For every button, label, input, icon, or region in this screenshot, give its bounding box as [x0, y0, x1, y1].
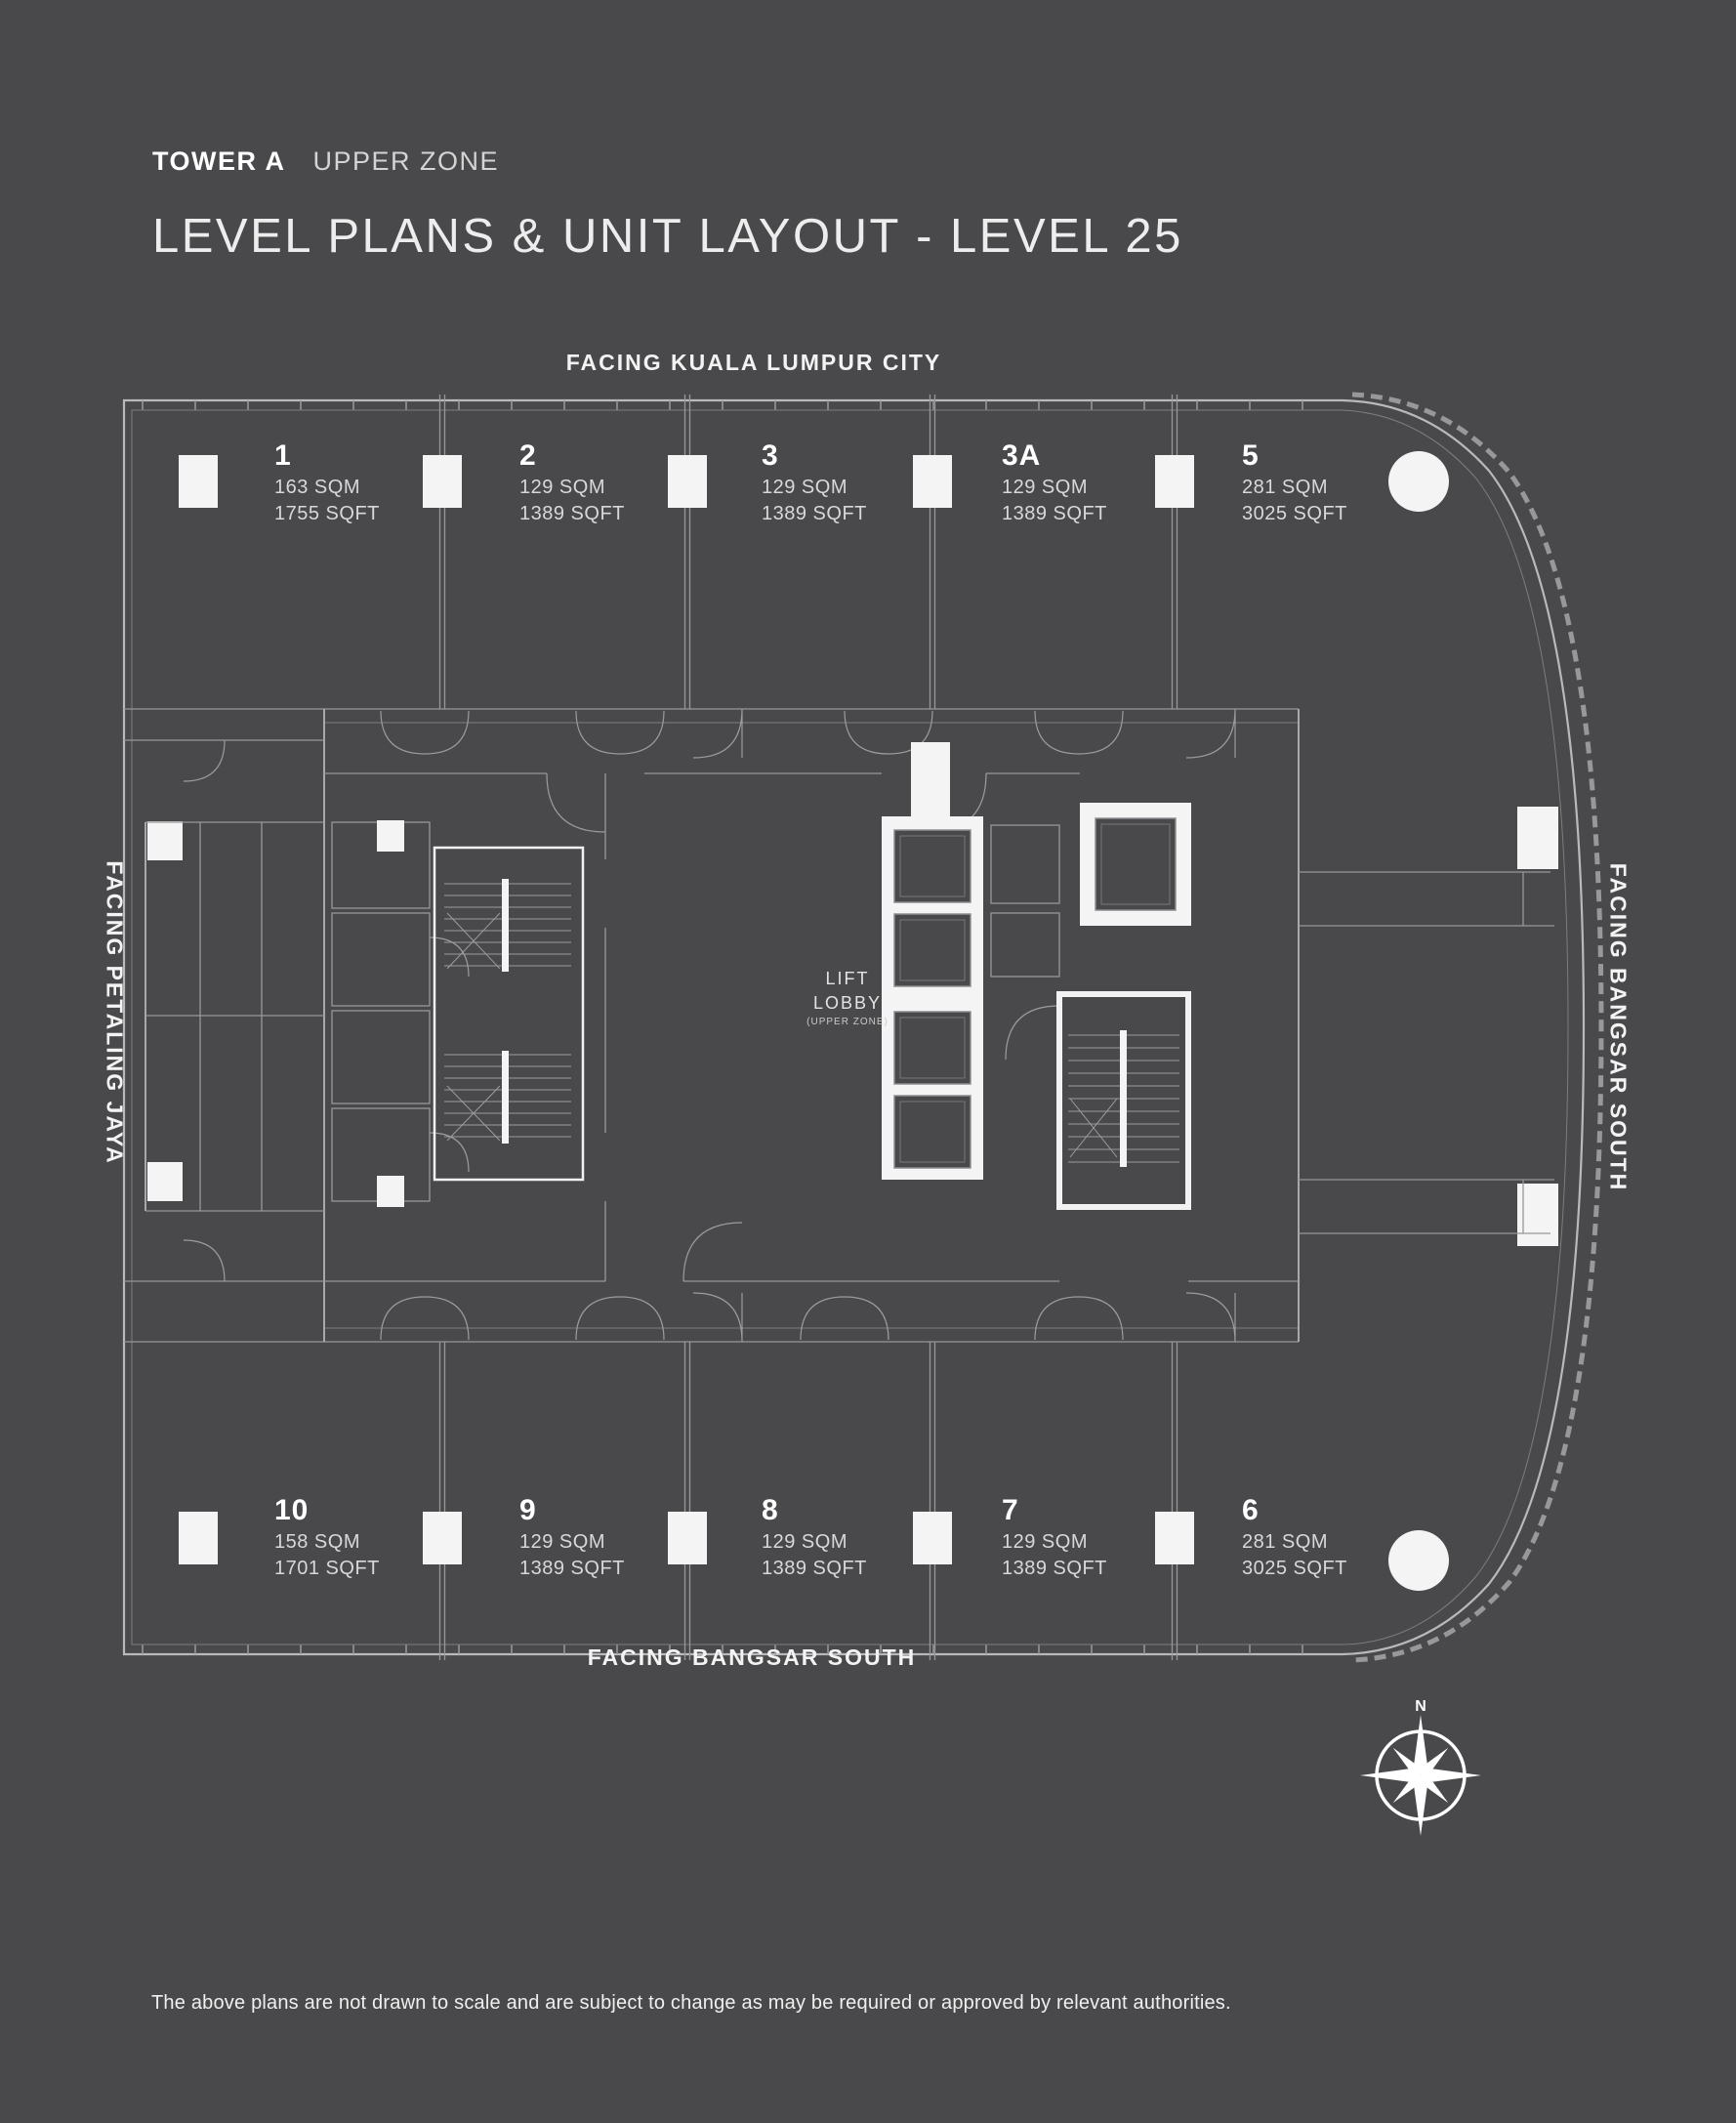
- column-bottom-9-8: [668, 1512, 707, 1564]
- unit-area-sqft: 3025 SQFT: [1242, 504, 1347, 523]
- compass-rose: N: [1360, 1698, 1481, 1836]
- column-top-3a-5: [1155, 455, 1194, 508]
- unit-label-2: 2 129 SQM 1389 SQFT: [519, 441, 625, 523]
- column-left-mid-lower: [147, 1162, 183, 1201]
- unit-area-sqft: 1389 SQFT: [1002, 1559, 1107, 1578]
- unit-label-8: 8 129 SQM 1389 SQFT: [762, 1496, 867, 1578]
- unit-label-9: 9 129 SQM 1389 SQFT: [519, 1496, 625, 1578]
- unit-area-sqft: 1389 SQFT: [519, 1559, 625, 1578]
- unit-area-sqft: 1389 SQFT: [1002, 504, 1107, 523]
- compass-cardinal-points: [1360, 1715, 1481, 1836]
- zone-label: UPPER ZONE: [313, 146, 500, 177]
- unit-area-sqm: 129 SQM: [519, 478, 625, 497]
- single-door: [693, 1293, 742, 1342]
- unit-area-sqft: 1389 SQFT: [762, 504, 867, 523]
- column-top-3-3a: [913, 455, 952, 508]
- page-title: LEVEL PLANS & UNIT LAYOUT - LEVEL 25: [152, 209, 1183, 264]
- unit-number: 3A: [1002, 441, 1107, 471]
- unit-area-sqft: 3025 SQFT: [1242, 1559, 1347, 1578]
- unit-number: 7: [1002, 1496, 1107, 1525]
- unit-number: 8: [762, 1496, 867, 1525]
- column-bottom-7-6: [1155, 1512, 1194, 1564]
- column-top-left: [179, 455, 218, 508]
- unit-area-sqm: 158 SQM: [274, 1532, 380, 1552]
- staircase-right: [1059, 994, 1188, 1207]
- lift-lobby-line1: LIFT: [806, 967, 889, 991]
- unit-label-7: 7 129 SQM 1389 SQFT: [1002, 1496, 1107, 1578]
- double-door: [801, 1297, 889, 1340]
- round-column-bottom-right: [1388, 1530, 1449, 1591]
- column-bottom-10-9: [423, 1512, 462, 1564]
- column-left-mid-upper: [147, 821, 183, 860]
- tower-label: TOWER A: [152, 146, 286, 177]
- unit-area-sqm: 129 SQM: [762, 1532, 867, 1552]
- page-header: TOWER A UPPER ZONE: [152, 146, 499, 177]
- unit-area-sqm: 129 SQM: [762, 478, 867, 497]
- unit-area-sqm: 163 SQM: [274, 478, 380, 497]
- unit-number: 6: [1242, 1496, 1347, 1525]
- unit-area-sqft: 1389 SQFT: [762, 1559, 867, 1578]
- unit-area-sqm: 129 SQM: [519, 1532, 625, 1552]
- compass-north-label: N: [1415, 1698, 1426, 1715]
- single-door: [1186, 709, 1235, 758]
- unit-label-3a: 3A 129 SQM 1389 SQFT: [1002, 441, 1107, 523]
- column-right-mid-upper: [1517, 807, 1558, 869]
- unit-area-sqm: 281 SQM: [1242, 478, 1347, 497]
- double-door: [1035, 711, 1123, 754]
- lift-lobby-label: LIFT LOBBY (UPPER ZONE): [806, 967, 889, 1029]
- lift-bank: [882, 742, 983, 1180]
- unit-label-10: 10 158 SQM 1701 SQFT: [274, 1496, 380, 1578]
- right-wing: [1299, 872, 1554, 1233]
- unit-area-sqft: 1701 SQFT: [274, 1559, 380, 1578]
- facing-label-right: FACING BANGSAR SOUTH: [1605, 863, 1632, 1191]
- core-rooms-left: [332, 822, 469, 1201]
- brochure-page: N TOWER A UPPER ZONE LEVEL PLANS & UNIT …: [0, 0, 1736, 2123]
- lift-lobby-line2: LOBBY: [806, 991, 889, 1016]
- single-door: [693, 709, 742, 758]
- round-column-top-right: [1388, 451, 1449, 512]
- double-door: [576, 711, 664, 754]
- staircase-left: [377, 820, 583, 1207]
- unit-label-6: 6 281 SQM 3025 SQFT: [1242, 1496, 1347, 1578]
- unit-number: 3: [762, 441, 867, 471]
- unit-label-3: 3 129 SQM 1389 SQFT: [762, 441, 867, 523]
- unit-area-sqft: 1755 SQFT: [274, 504, 380, 523]
- unit-area-sqm: 281 SQM: [1242, 1532, 1347, 1552]
- column-bottom-left: [179, 1512, 218, 1564]
- unit-number: 2: [519, 441, 625, 471]
- unit-area-sqm: 129 SQM: [1002, 1532, 1107, 1552]
- core-rooms-right: [991, 825, 1059, 977]
- facing-label-bottom: FACING BANGSAR SOUTH: [588, 1644, 916, 1671]
- unit-number: 1: [274, 441, 380, 471]
- disclaimer-text: The above plans are not drawn to scale a…: [151, 1992, 1231, 2015]
- lift-lobby-line3: (UPPER ZONE): [806, 1016, 889, 1029]
- facing-label-left: FACING PETALING JAYA: [102, 860, 128, 1164]
- single-door: [1186, 1293, 1235, 1342]
- unit-area-sqft: 1389 SQFT: [519, 504, 625, 523]
- double-door: [381, 1297, 469, 1340]
- column-top-1-2: [423, 455, 462, 508]
- unit-number: 9: [519, 1496, 625, 1525]
- column-bottom-8-7: [913, 1512, 952, 1564]
- double-door: [381, 711, 469, 754]
- double-door: [1035, 1297, 1123, 1340]
- floor-plan-drawing: N: [0, 0, 1736, 2123]
- unit-number: 5: [1242, 441, 1347, 471]
- double-door: [576, 1297, 664, 1340]
- unit-number: 10: [274, 1496, 380, 1525]
- facing-label-top: FACING KUALA LUMPUR CITY: [566, 350, 941, 376]
- column-top-2-3: [668, 455, 707, 508]
- curtain-wall-dashed-line: [1352, 395, 1601, 1660]
- unit-label-1: 1 163 SQM 1755 SQFT: [274, 441, 380, 523]
- unit-area-sqm: 129 SQM: [1002, 478, 1107, 497]
- service-lift: [1080, 803, 1191, 926]
- unit-label-5: 5 281 SQM 3025 SQFT: [1242, 441, 1347, 523]
